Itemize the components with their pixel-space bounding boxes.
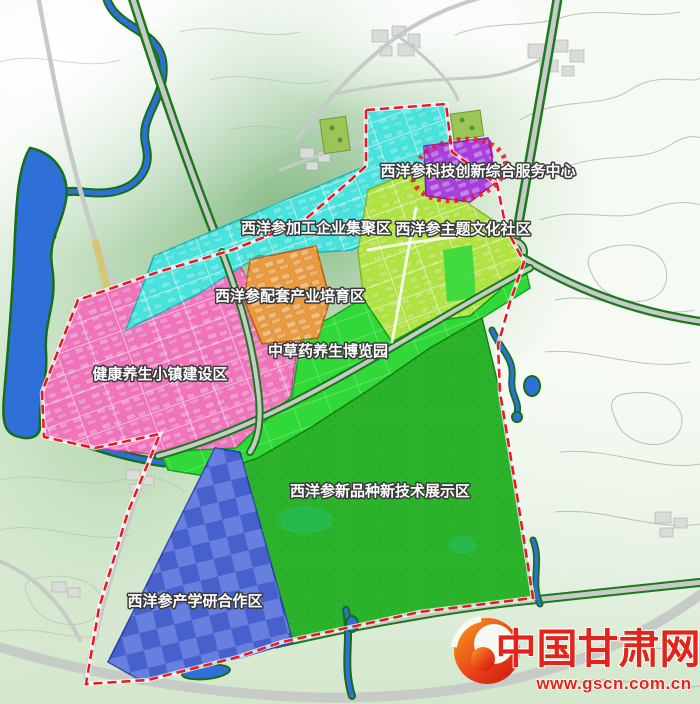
label-research-cooperation: 西洋参产学研合作区 bbox=[127, 592, 262, 610]
label-herb-expo-park: 中草药养生博览园 bbox=[268, 342, 388, 360]
label-support-industry: 西洋参配套产业培育区 bbox=[215, 287, 365, 305]
planning-map: 西洋参科技创新综合服务中心 西洋参加工企业集聚区 西洋参主题文化社区 西洋参配套… bbox=[0, 0, 700, 704]
label-health-town: 健康养生小镇建设区 bbox=[92, 365, 227, 383]
watermark-site-url: www.gscn.com.cn bbox=[535, 674, 691, 693]
watermark-site-name: 中国甘肃网 bbox=[496, 625, 700, 673]
map-canvas: 西洋参科技创新综合服务中心 西洋参加工企业集聚区 西洋参主题文化社区 西洋参配套… bbox=[0, 0, 700, 704]
label-processing-cluster: 西洋参加工企业集聚区 bbox=[241, 219, 391, 237]
label-culture-community: 西洋参主题文化社区 bbox=[395, 220, 530, 238]
label-demo-area: 西洋参新品种新技术展示区 bbox=[290, 482, 470, 500]
watermark: 中国甘肃网 www.gscn.com.cn bbox=[454, 618, 700, 693]
label-tech-service-center: 西洋参科技创新综合服务中心 bbox=[380, 162, 575, 180]
